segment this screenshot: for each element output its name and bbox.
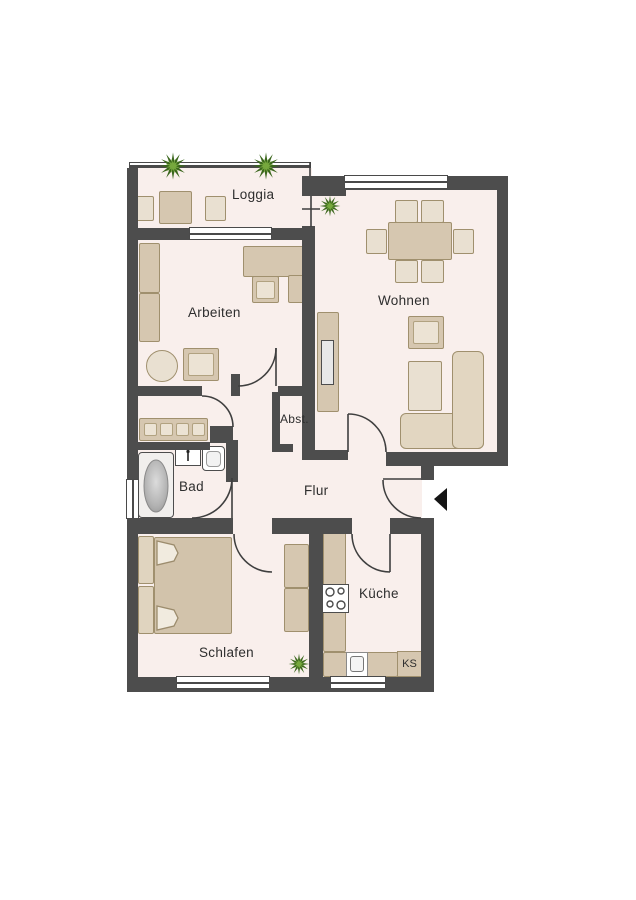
room-label-schlafen: Schlafen	[199, 645, 254, 660]
wall	[127, 168, 138, 692]
bathtub	[138, 452, 174, 518]
bedroom-wardrobe	[284, 588, 309, 632]
wall	[421, 518, 434, 534]
bed-headboard	[138, 536, 154, 584]
fridge-label: KS	[402, 658, 417, 670]
wardrobe-door	[144, 423, 157, 436]
wall	[127, 518, 233, 534]
desk	[243, 246, 307, 277]
desk-chair-seat	[256, 281, 275, 299]
wall	[231, 374, 240, 396]
dining-chair	[395, 200, 418, 223]
schlafen-window	[176, 676, 270, 689]
wall	[421, 534, 434, 677]
dining-chair	[421, 200, 444, 223]
sofa	[452, 351, 484, 449]
arbeiten-window	[189, 227, 272, 240]
floor-plan: KS	[0, 0, 636, 900]
wall	[272, 392, 280, 452]
armchair-seat	[188, 353, 214, 376]
wall	[127, 677, 434, 692]
bedroom-wardrobe	[284, 544, 309, 588]
round-table	[146, 350, 178, 382]
bed-headboard	[138, 586, 154, 634]
room-label-flur: Flur	[304, 483, 328, 498]
wall	[302, 176, 346, 196]
wall	[127, 386, 202, 396]
tv	[321, 340, 334, 385]
wall	[303, 444, 315, 452]
wardrobe-door	[176, 423, 189, 436]
shelf	[139, 243, 160, 293]
entrance-arrow-icon	[434, 488, 447, 511]
coffee-table	[408, 361, 442, 411]
armchair-seat	[413, 321, 439, 344]
wohnen-window	[344, 175, 448, 189]
dining-chair	[453, 229, 474, 254]
room-label-loggia: Loggia	[232, 187, 274, 202]
fridge: KS	[397, 651, 422, 677]
stove	[321, 584, 349, 613]
room-label-wohnen: Wohnen	[378, 293, 430, 308]
dining-chair	[366, 229, 387, 254]
loggia-chair	[205, 196, 226, 221]
wall	[127, 442, 210, 450]
wall	[278, 386, 315, 396]
wall	[309, 518, 323, 677]
bad-window	[126, 479, 139, 519]
wall	[386, 452, 508, 466]
room-label-bad: Bad	[179, 479, 204, 494]
kueche-window	[330, 676, 386, 689]
wall	[272, 444, 293, 452]
dining-chair	[395, 260, 418, 283]
wall	[421, 452, 434, 480]
shelf	[139, 293, 160, 342]
room-label-arbeiten: Arbeiten	[188, 305, 241, 320]
room-label-kueche: Küche	[359, 586, 399, 601]
wardrobe-door	[192, 423, 205, 436]
room-label-abstellraum: Abst.	[280, 412, 309, 426]
dining-table	[388, 222, 452, 260]
kitchen-sink-basin	[350, 656, 364, 672]
wall	[226, 440, 238, 482]
dining-chair	[421, 260, 444, 283]
loggia-railing	[129, 162, 311, 168]
bed	[154, 537, 232, 634]
toilet-bowl	[206, 451, 221, 467]
loggia-table	[159, 191, 192, 224]
wardrobe-door	[160, 423, 173, 436]
wall	[497, 176, 508, 466]
